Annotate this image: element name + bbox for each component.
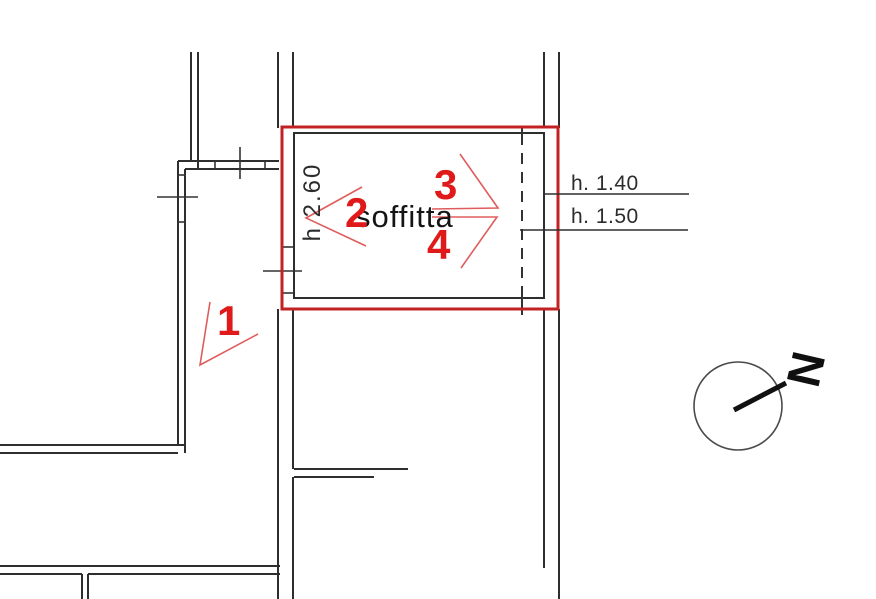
photo-marker-4: 4 [427, 224, 450, 266]
photo-marker-2: 2 [345, 192, 368, 234]
floor-plan-drawing [0, 0, 876, 599]
north-indicator [694, 362, 786, 450]
room-height-label: h 2.60 [301, 152, 325, 252]
north-needle [734, 383, 786, 410]
height-annotation-140: h. 1.40 [571, 173, 639, 194]
photo-marker-3: 3 [434, 164, 457, 206]
walls [0, 52, 559, 599]
photo-marker-1: 1 [217, 300, 240, 342]
height-annotation-150: h. 1.50 [571, 206, 639, 227]
floor-plan-page: soffitta h 2.60 h. 1.40 h. 1.50 1 2 3 4 … [0, 0, 876, 599]
